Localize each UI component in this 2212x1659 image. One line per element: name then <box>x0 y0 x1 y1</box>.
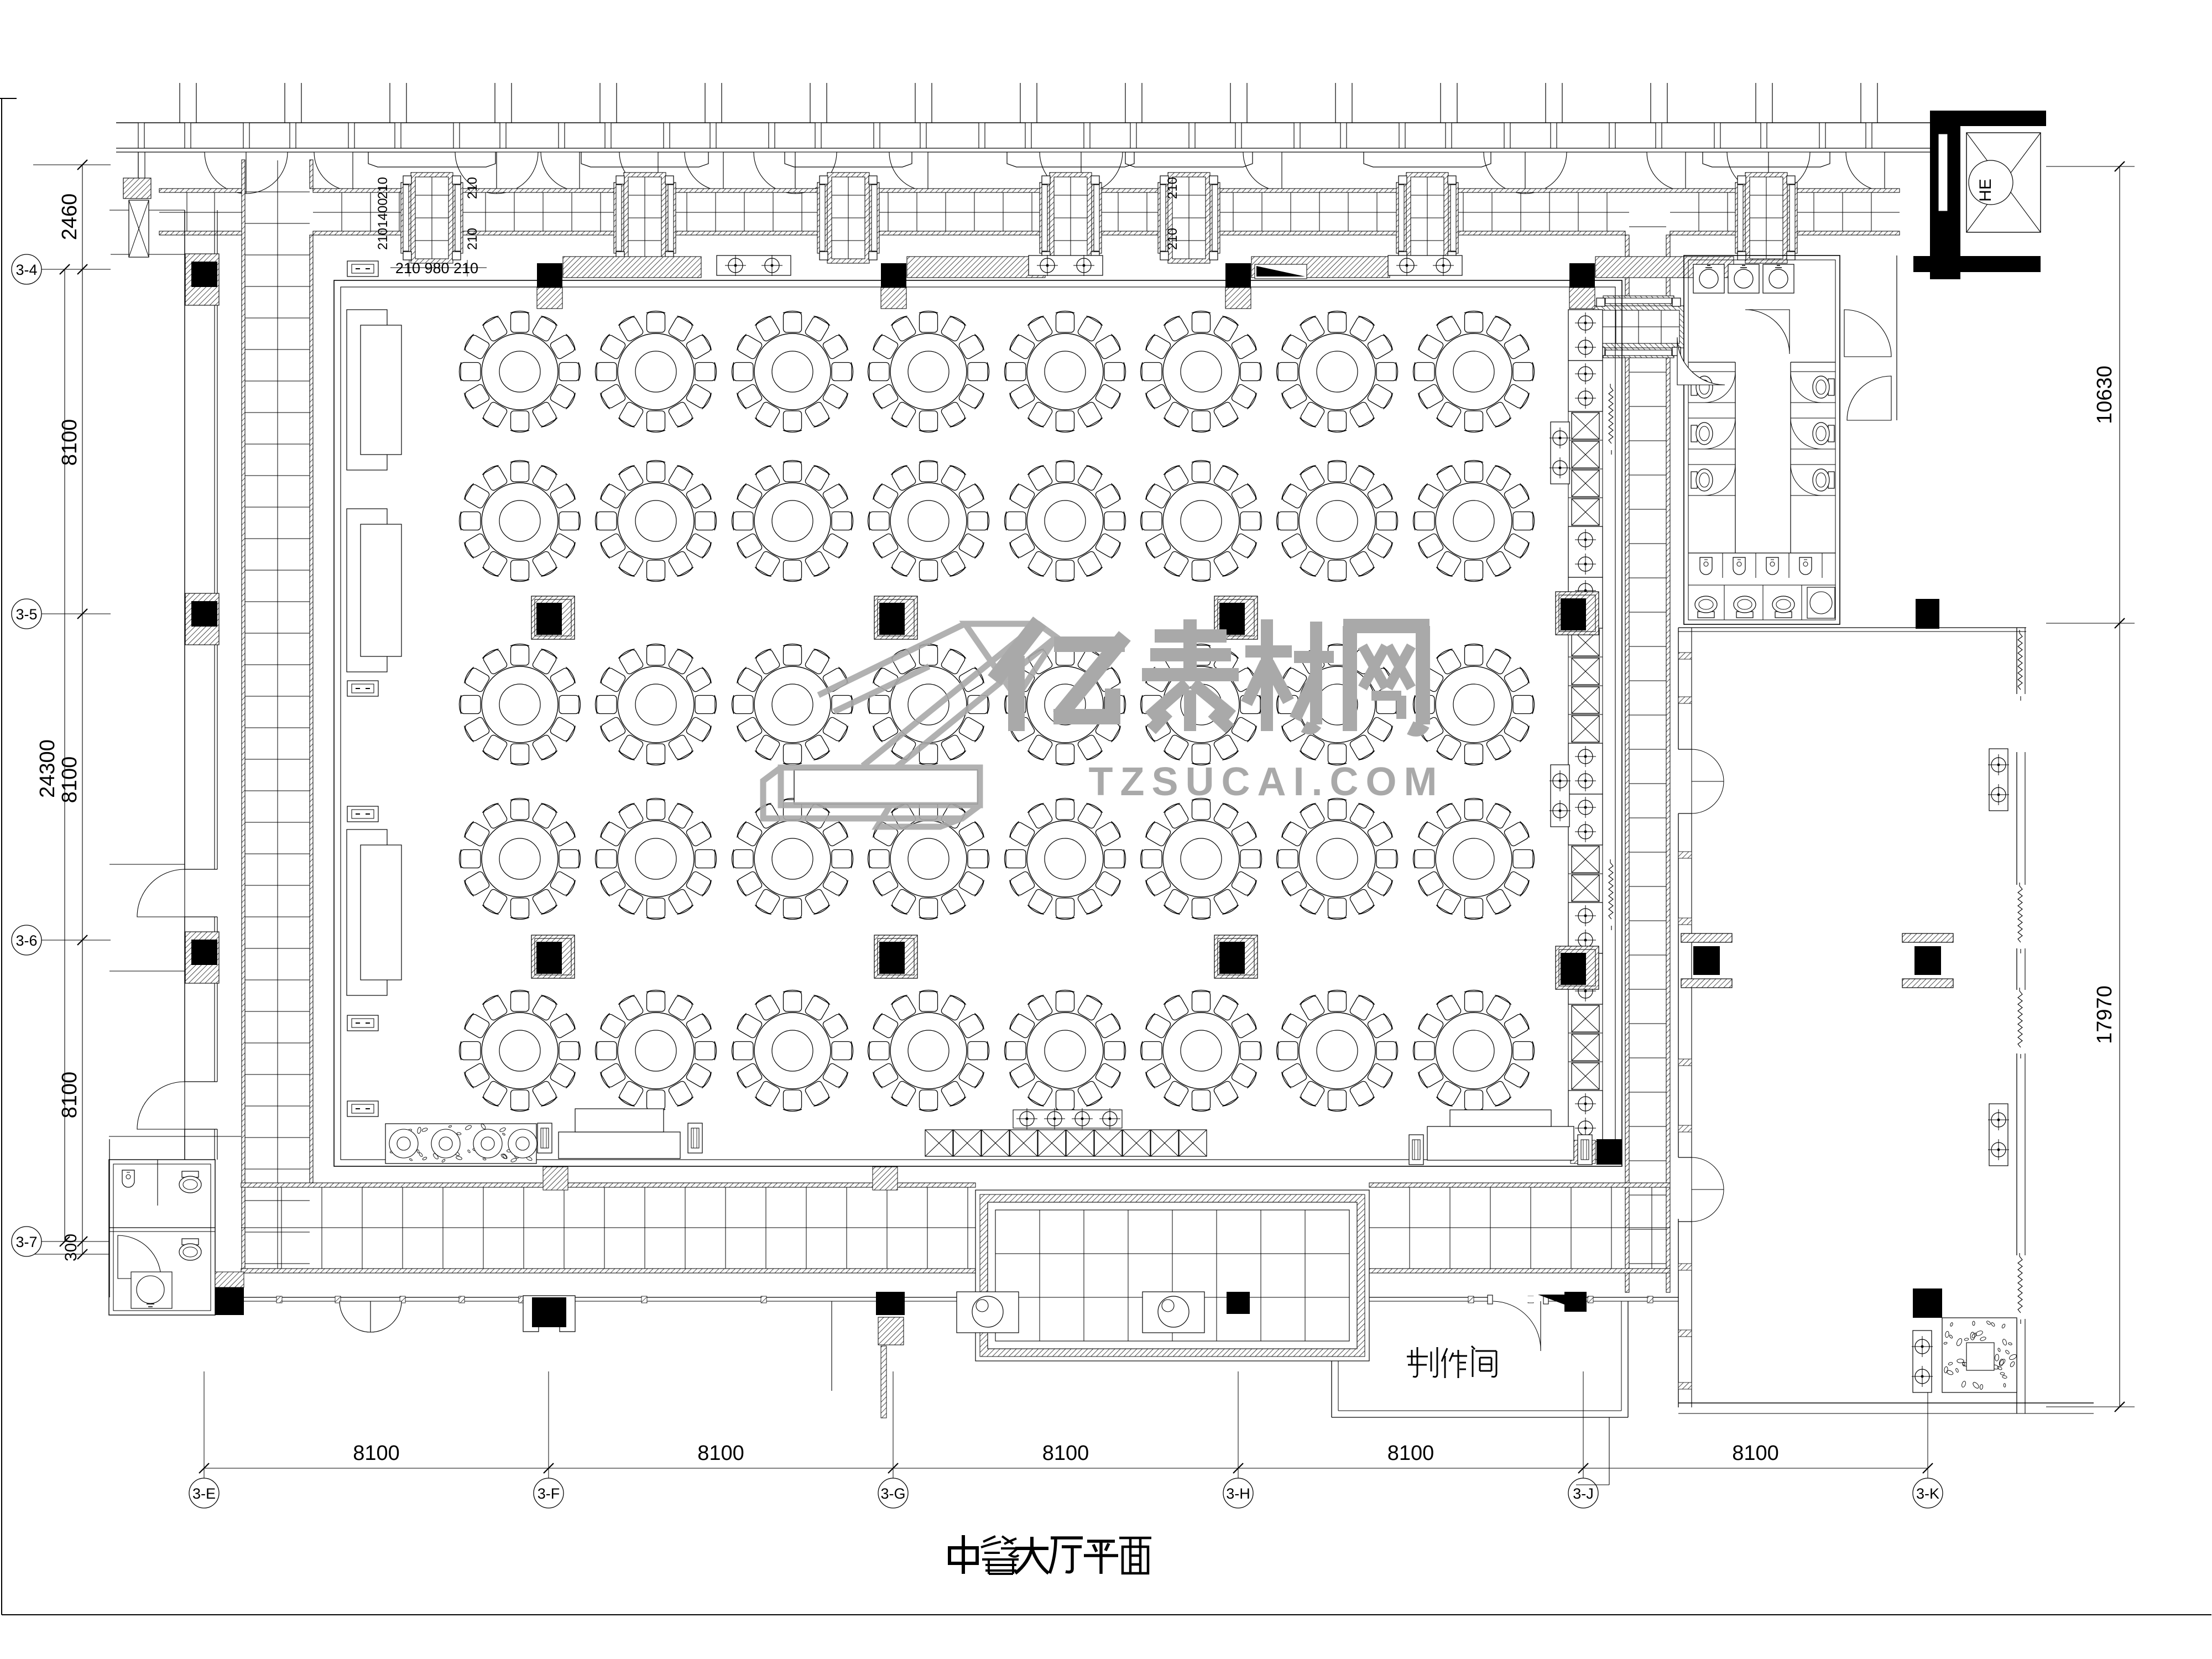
svg-text:8100: 8100 <box>1387 1442 1434 1465</box>
svg-text:300: 300 <box>62 1234 80 1261</box>
svg-text:3-H: 3-H <box>1226 1485 1250 1502</box>
svg-text:1400: 1400 <box>375 198 390 227</box>
svg-text:210: 210 <box>375 228 390 250</box>
svg-text:210: 210 <box>465 177 480 199</box>
svg-text:3-J: 3-J <box>1573 1485 1594 1502</box>
svg-text:3-5: 3-5 <box>15 606 37 623</box>
svg-text:2460: 2460 <box>58 194 81 241</box>
svg-text:3-K: 3-K <box>1916 1485 1939 1502</box>
svg-text:3-6: 3-6 <box>15 932 37 949</box>
svg-text:8100: 8100 <box>697 1442 744 1465</box>
svg-text:210: 210 <box>465 228 480 250</box>
svg-text:3-F: 3-F <box>538 1485 560 1502</box>
svg-text:8100: 8100 <box>1732 1442 1779 1465</box>
svg-text:3-E: 3-E <box>192 1485 216 1502</box>
svg-text:8100: 8100 <box>353 1442 400 1465</box>
svg-text:210: 210 <box>1165 228 1180 250</box>
svg-text:HE: HE <box>1976 179 1995 202</box>
svg-text:210: 210 <box>375 177 390 199</box>
svg-text:17970: 17970 <box>2093 985 2116 1044</box>
svg-text:10630: 10630 <box>2093 366 2116 424</box>
svg-text:TZSUCAI.COM: TZSUCAI.COM <box>1089 760 1444 804</box>
svg-text:3-G: 3-G <box>880 1485 905 1502</box>
svg-text:3-7: 3-7 <box>15 1234 37 1250</box>
svg-text:8100: 8100 <box>58 419 81 466</box>
svg-text:210 980 210: 210 980 210 <box>395 260 478 276</box>
svg-text:3-4: 3-4 <box>15 262 37 278</box>
svg-text:8100: 8100 <box>58 757 81 804</box>
svg-text:8100: 8100 <box>1042 1442 1089 1465</box>
svg-text:24300: 24300 <box>36 739 59 798</box>
svg-text:8100: 8100 <box>58 1072 81 1119</box>
svg-text:210: 210 <box>1165 177 1180 199</box>
